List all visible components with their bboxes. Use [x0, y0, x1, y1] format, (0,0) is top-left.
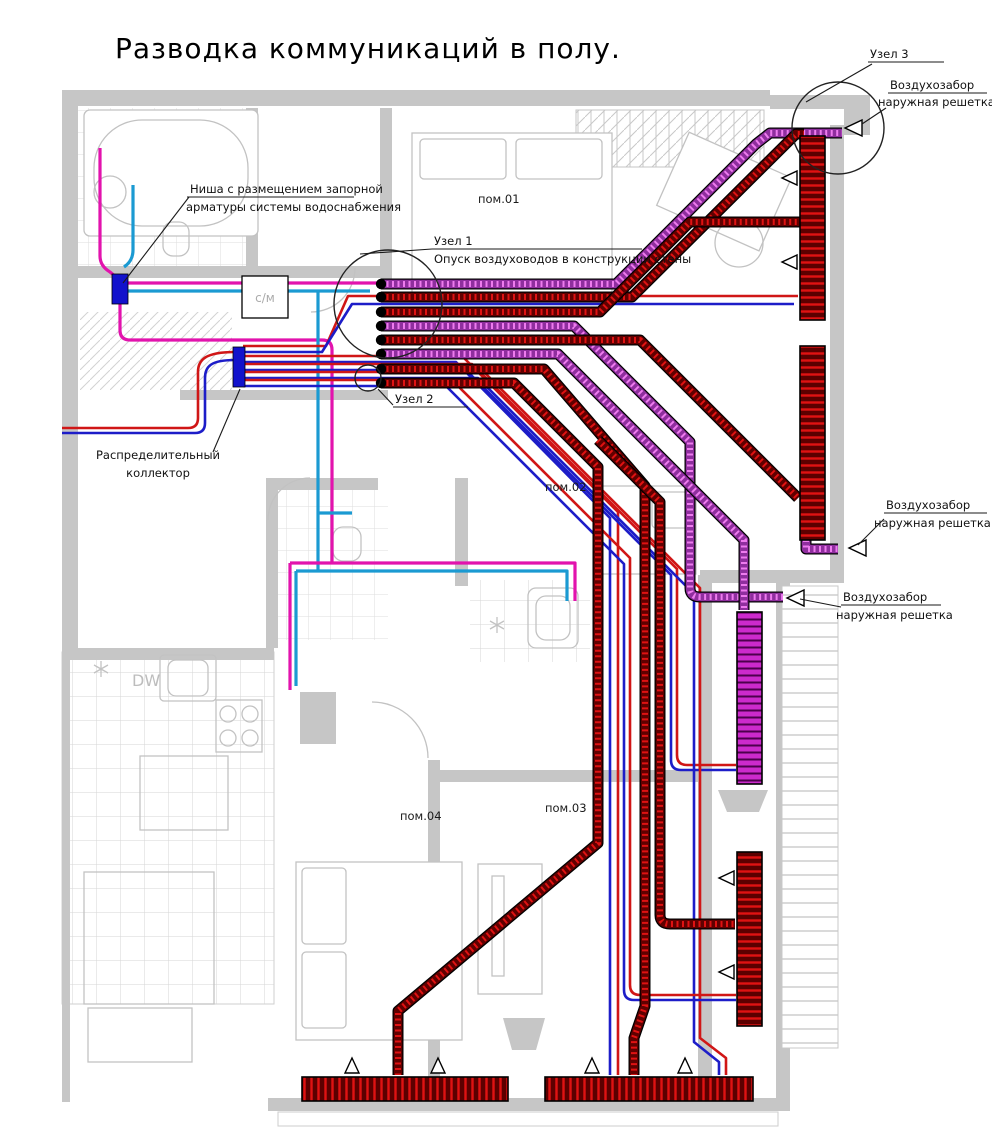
- dishwasher-label: DW: [132, 671, 160, 690]
- bathtub: [84, 110, 258, 236]
- duct-drop-label: Опуск воздуховодов в конструкции стены: [434, 252, 691, 266]
- floor-grille-right: [545, 1077, 753, 1101]
- intake-low-label-2: наружная решетка: [836, 608, 953, 622]
- balcony-strip: [278, 1112, 778, 1126]
- floor-plan-canvas: Разводка коммуникаций в полу. Узел 3 Воз…: [0, 0, 992, 1130]
- room-label-3: пом.03: [545, 801, 587, 815]
- manifold-label-1: Распределительный: [96, 448, 220, 462]
- washing-machine-label: с/м: [255, 291, 275, 305]
- manifold-label-2: коллектор: [126, 466, 190, 480]
- floor-plan-drawing: Разводка коммуникаций в полу. Узел 3 Воз…: [0, 0, 992, 1130]
- stair-strip: [782, 586, 838, 1048]
- shutoff-niche: [112, 274, 128, 304]
- floor-grille-left: [302, 1077, 508, 1101]
- wall-grille-violet: [737, 612, 762, 784]
- grille-marker-icon: [678, 1058, 692, 1073]
- grille-marker-icon: [585, 1058, 599, 1073]
- node3-label: Узел 3: [870, 47, 909, 61]
- duct-end-caps: [376, 279, 386, 388]
- grille-marker-icon: [345, 1058, 359, 1073]
- distribution-manifold: [233, 347, 245, 387]
- drawing-title: Разводка коммуникаций в полу.: [115, 32, 621, 65]
- door-arc: [372, 702, 428, 758]
- intake-top-label-2: наружная решетка: [878, 95, 992, 109]
- intake-mid-label-2: наружная решетка: [874, 516, 991, 530]
- node1-label: Узел 1: [434, 234, 473, 248]
- wall-grille-top-right: [800, 136, 825, 320]
- node2-label: Узел 2: [395, 392, 434, 406]
- niche-label-2: арматуры системы водоснабжения: [186, 200, 401, 214]
- intake-mid-label-1: Воздухозабор: [886, 498, 970, 512]
- grille-marker-icon: [719, 965, 734, 979]
- intake-arrow-icon: [849, 540, 866, 556]
- wall-grille-mid-right: [800, 346, 825, 540]
- room-label-1: пом.01: [478, 192, 520, 206]
- grille-marker-icon: [782, 255, 797, 269]
- wall-grille-bottom-right: [737, 852, 762, 1026]
- grille-marker-icon: [719, 871, 734, 885]
- room-label-2: пом.02: [545, 480, 587, 494]
- intake-top-label-1: Воздухозабор: [890, 78, 974, 92]
- niche-label-1: Ниша с размещением запорной: [190, 182, 383, 196]
- intake-low-label-1: Воздухозабор: [843, 590, 927, 604]
- room-label-4: пом.04: [400, 809, 442, 823]
